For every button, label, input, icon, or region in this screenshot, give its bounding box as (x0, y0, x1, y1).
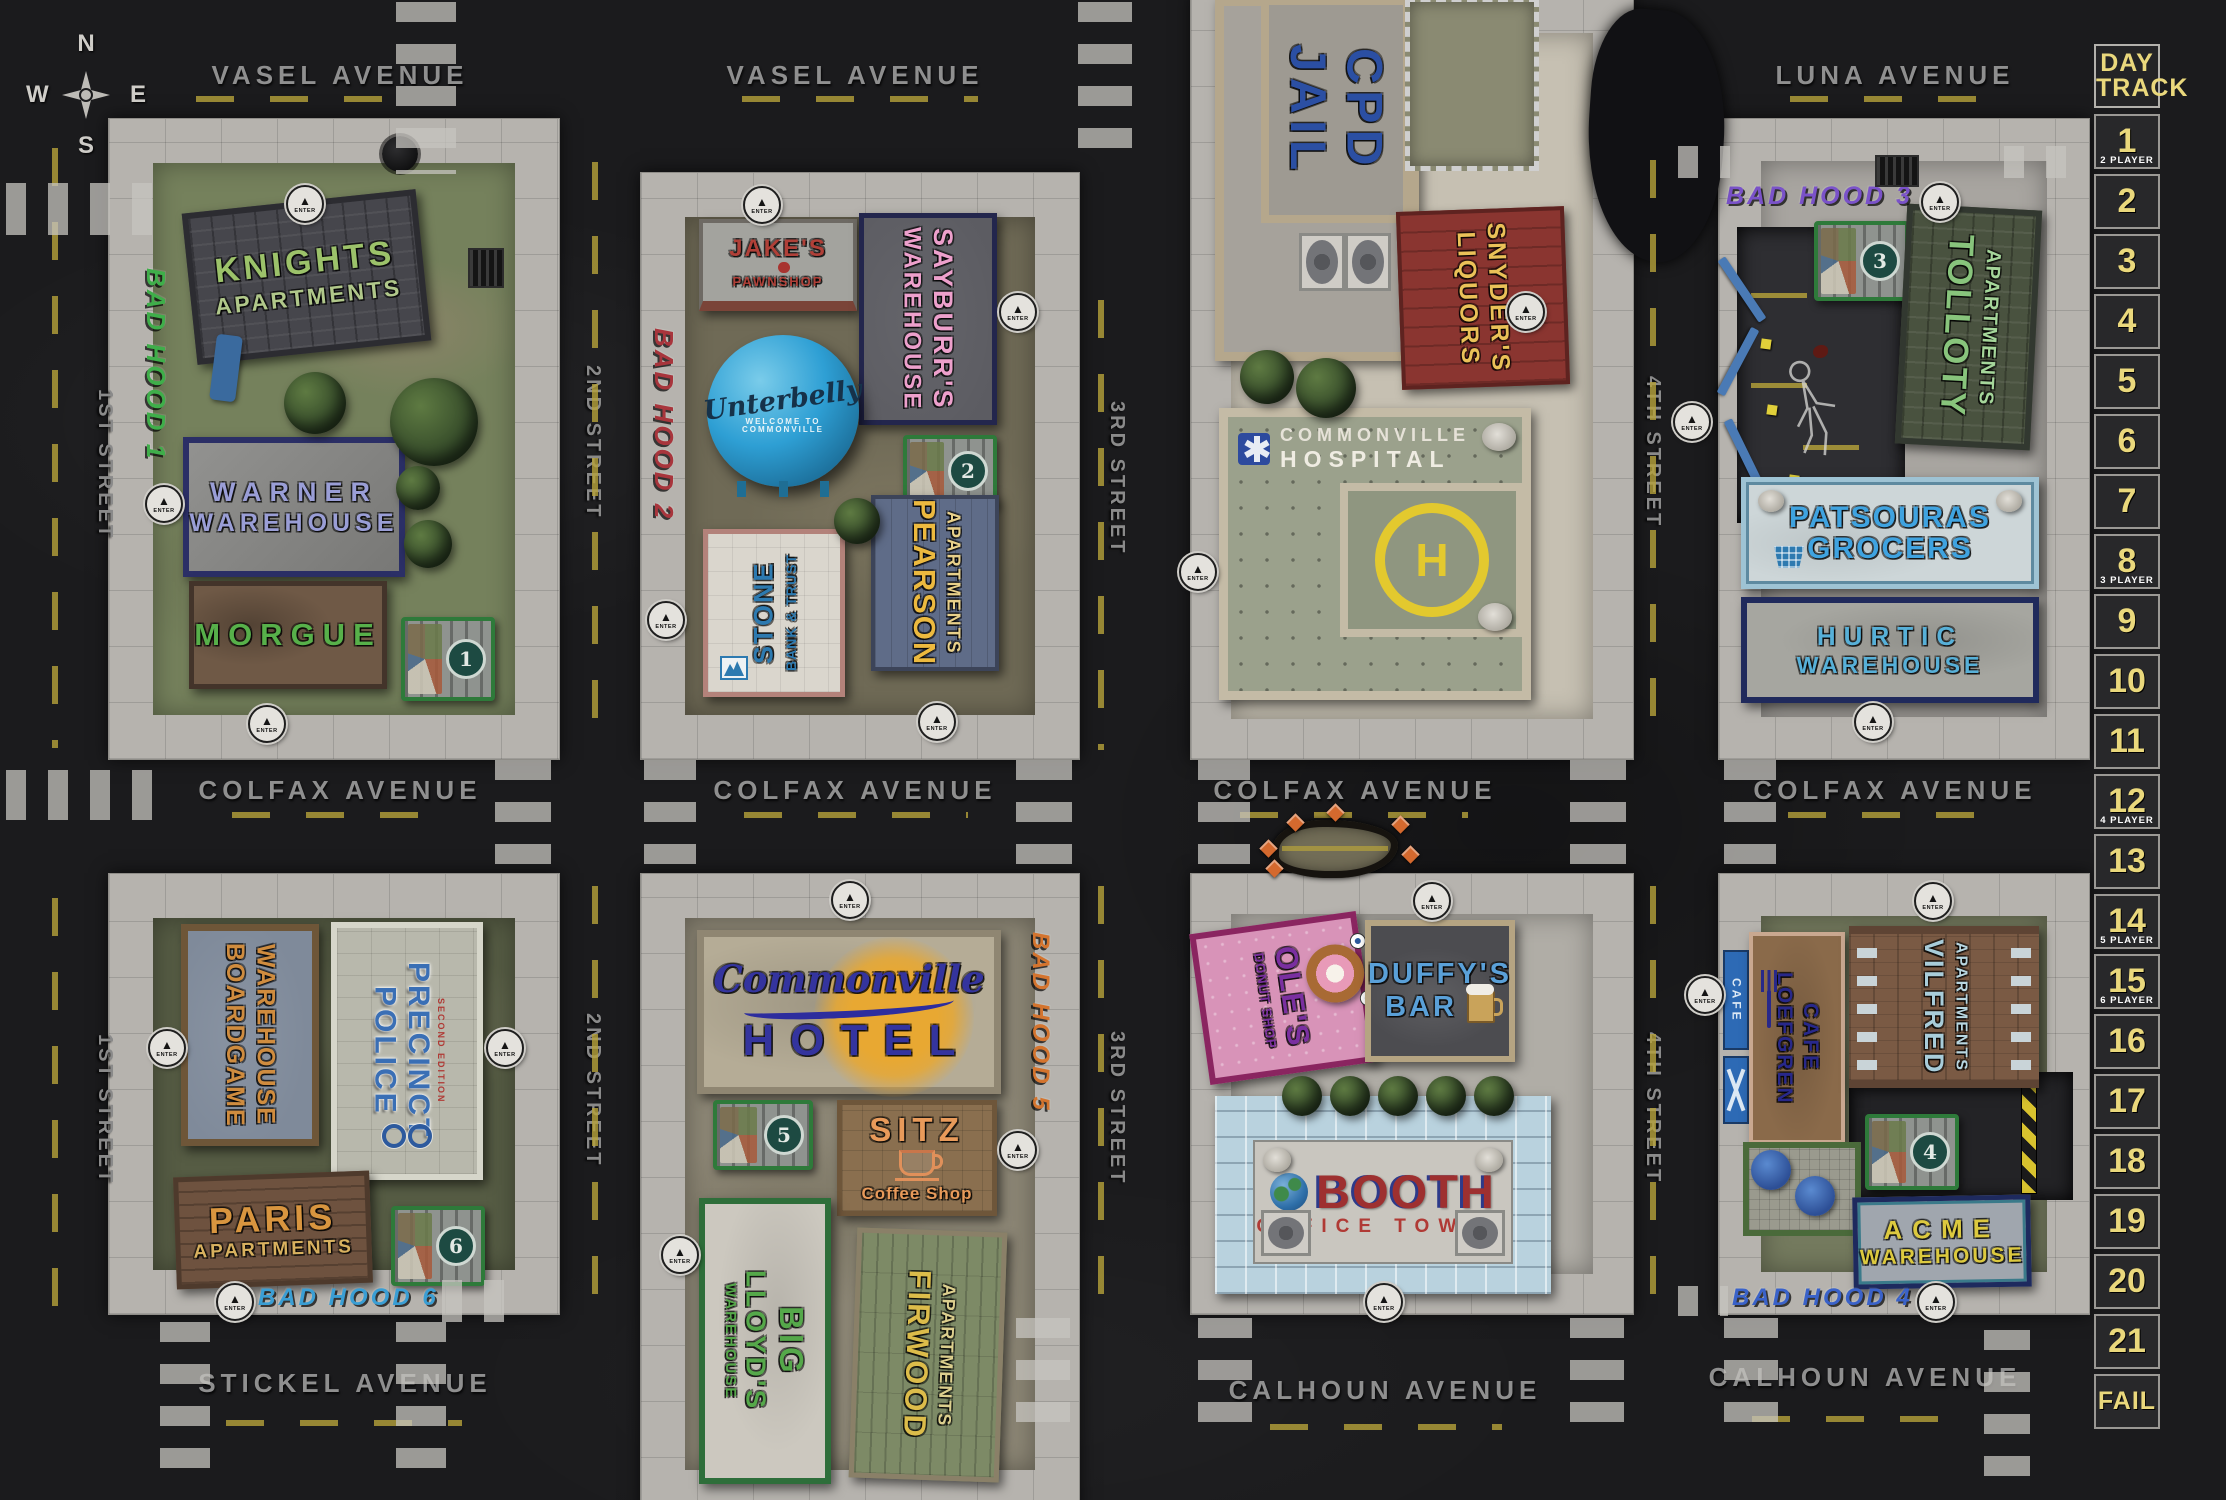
road-center-line (1790, 96, 2002, 102)
enter-label: ENTER (669, 1260, 690, 1266)
enter-label: ENTER (224, 1307, 245, 1313)
enter-arrow-icon (1934, 191, 1946, 207)
enter-marker: ENTER (1914, 882, 1952, 920)
commonville-game-board: N S W E KNIGHTS APARTMENTS WARNER WAREHO… (0, 0, 2226, 1500)
fork-icon (1761, 970, 1777, 1028)
enter-marker: ENTER (831, 881, 869, 919)
crosswalk (1984, 1330, 2030, 1485)
city-block-8: CAFE LOEFGREN CAFE VILFRED APARTMENTS 4 (1718, 873, 2090, 1315)
day-track-cell-14: 145 PLAYER (2094, 894, 2160, 949)
street-label-4th-street-upper: 4TH STREET (1634, 362, 1664, 542)
enter-label: ENTER (156, 1053, 177, 1059)
day-track-cell-10: 10 (2094, 654, 2160, 709)
enter-marker: ENTER (486, 1029, 524, 1067)
road-center-line (52, 898, 58, 1306)
tree (390, 378, 478, 466)
building-commonville-hotel: Commonville HOTEL (697, 930, 1001, 1094)
building-boardgame-warehouse: BOARDGAME WAREHOUSE (181, 924, 319, 1146)
enter-arrow-icon (1426, 890, 1438, 906)
enter-arrow-icon (1930, 1291, 1942, 1307)
road-center-line (592, 162, 598, 748)
building-booth-office-tower: BOOTH OFFICE TOWER (1215, 1096, 1551, 1294)
day-track-cell-11: 11 (2094, 714, 2160, 769)
enter-arrow-icon (158, 493, 170, 509)
enter-label: ENTER (294, 209, 315, 215)
enter-marker: ENTER (999, 1131, 1037, 1169)
crosswalk (6, 183, 174, 235)
enter-marker: ENTER (145, 485, 183, 523)
building-paris-apartments: PARIS APARTMENTS (173, 1171, 373, 1290)
jail-fenced-yard (1405, 0, 1539, 171)
enter-arrow-icon (499, 1037, 511, 1053)
cherries-icon (765, 262, 791, 274)
enter-label: ENTER (1421, 906, 1442, 912)
ac-unit (1261, 1210, 1311, 1256)
tree (1474, 1076, 1514, 1116)
enter-marker: ENTER (216, 1283, 254, 1321)
evidence-marker (1760, 338, 1771, 349)
building-tolloty-apartments: TOLLOTY APARTMENTS (1895, 204, 2042, 451)
player-count-note: 6 PLAYER (2096, 995, 2158, 1006)
street-label-colfax-avenue-2: COLFAX AVENUE (690, 775, 1020, 806)
enter-marker: ENTER (1413, 882, 1451, 920)
ac-unit (1345, 233, 1391, 291)
street-label-1st-street-upper: 1ST STREET (86, 375, 116, 555)
city-block-4: 3 TOLLOTY APARTMENTS PATSOURAS GROCERS H… (1718, 118, 2090, 760)
trash (398, 1213, 432, 1279)
enter-label: ENTER (1681, 427, 1702, 433)
tree (284, 372, 346, 434)
day-track-cell-13: 13 (2094, 834, 2160, 889)
crosswalk (6, 770, 174, 820)
handcuffs-icon (382, 1124, 432, 1148)
day-track: DAY TRACK 12 PLAYER23456783 PLAYER910111… (2094, 44, 2160, 1429)
crosswalk (160, 1322, 210, 1484)
enter-marker: ENTER (1854, 703, 1892, 741)
dumpster-6-badge: 6 (436, 1226, 476, 1266)
city-block-2: JAKE'S PAWNSHOP SAYBURR'S WAREHOUSE Unte… (640, 172, 1080, 760)
tree (834, 498, 880, 544)
tree (1426, 1076, 1466, 1116)
road-center-line (1240, 812, 1468, 818)
crosswalk (1016, 760, 1072, 870)
player-count-note: 5 PLAYER (2096, 935, 2158, 946)
building-big-lloyds-warehouse: BIG LLOYD'S WAREHOUSE (699, 1198, 831, 1484)
enter-arrow-icon (299, 193, 311, 209)
day-track-cell-16: 16 (2094, 1014, 2160, 1069)
enter-marker: ENTER (1507, 293, 1545, 331)
day-track-title-line2: TRACK (2096, 76, 2158, 102)
building-loefgren-cafe: LOEFGREN CAFE (1749, 932, 1845, 1144)
enter-label: ENTER (256, 729, 277, 735)
chalk-body-outline-icon (1765, 349, 1860, 468)
grocery-basket-icon (1774, 546, 1804, 568)
building-oles-donut-shop: OLE'S DONUT SHOP (1189, 911, 1377, 1085)
building-pearson-apartments: PEARSON APARTMENTS (871, 495, 999, 671)
enter-label: ENTER (1007, 1155, 1028, 1161)
trash (408, 624, 442, 694)
enter-arrow-icon (261, 713, 273, 729)
enter-arrow-icon (1378, 1291, 1390, 1307)
road-center-line (1270, 1424, 1502, 1430)
crosswalk (1570, 760, 1626, 870)
street-label-vasel-avenue-west: VASEL AVENUE (170, 60, 510, 91)
day-track-cell-6: 6 (2094, 414, 2160, 469)
enter-label: ENTER (1922, 906, 1943, 912)
city-block-1: KNIGHTS APARTMENTS WARNER WAREHOUSE MORG… (108, 118, 560, 760)
roof-bolt (1758, 490, 1784, 512)
traffic-cone (1391, 815, 1409, 833)
road-center-line (1650, 886, 1656, 1306)
enter-arrow-icon (1927, 890, 1939, 906)
crosswalk (396, 2, 456, 174)
day-track-cell-1: 12 PLAYER (2094, 114, 2160, 169)
dumpster-4-badge: 4 (1910, 1132, 1950, 1172)
enter-marker: ENTER (661, 1236, 699, 1274)
roof-bolt (1475, 1148, 1503, 1172)
cafe-utensils-sign (1723, 1056, 1749, 1124)
enter-arrow-icon (756, 194, 768, 210)
trash (1872, 1121, 1906, 1183)
graffiti-bad-hood-6: BAD HOOD 6 (258, 1284, 439, 1312)
graffiti-bad-hood-2: BAD HOOD 2 (648, 328, 679, 538)
crosswalk (396, 1322, 446, 1480)
building-commonville-hospital: COMMONVILLE HOSPITAL H (1219, 408, 1531, 700)
player-count-note: 3 PLAYER (2096, 575, 2158, 586)
trash (720, 1107, 757, 1163)
road-center-line (196, 96, 404, 102)
ac-unit (1299, 233, 1345, 291)
enter-label: ENTER (1929, 207, 1950, 213)
tree (1240, 350, 1294, 404)
crosswalk (1724, 760, 1776, 870)
street-label-1st-street-lower: 1ST STREET (86, 1020, 116, 1200)
building-vilfred-apartments: VILFRED APARTMENTS (1849, 926, 2039, 1088)
road-center-line (232, 812, 454, 818)
day-track-cell-12: 124 PLAYER (2094, 774, 2160, 829)
street-label-calhoun-avenue-1: CALHOUN AVENUE (1215, 1375, 1555, 1406)
enter-arrow-icon (1686, 411, 1698, 427)
day-track-cell-5: 5 (2094, 354, 2160, 409)
building-snyders-liquors: SNYDER'S LIQUORS (1396, 206, 1570, 390)
day-track-title-line1: DAY (2096, 51, 2158, 77)
traffic-cone (1326, 803, 1344, 821)
day-track-cell-17: 17 (2094, 1074, 2160, 1129)
street-label-luna-avenue: LUNA AVENUE (1740, 60, 2050, 91)
building-firwood-apartments: FIRWOOD APARTMENTS (849, 1227, 1008, 1482)
trash (1821, 228, 1856, 294)
player-count-note: 4 PLAYER (2096, 815, 2158, 826)
patio-umbrella (1751, 1150, 1791, 1190)
building-sayburrs-warehouse: SAYBURR'S WAREHOUSE (859, 213, 997, 425)
graffiti-bad-hood-5: BAD HOOD 5 (1026, 932, 1054, 1132)
storm-drain-grate (468, 248, 504, 288)
building-police-precinct: POLICE PRECINCT SECOND EDITION (331, 922, 483, 1180)
street-label-colfax-avenue-1: COLFAX AVENUE (170, 775, 510, 806)
road-center-line (592, 886, 598, 1306)
stone-bank-mountain-logo (720, 656, 748, 680)
enter-label: ENTER (839, 905, 860, 911)
street-label-4th-street-lower: 4TH STREET (1634, 1018, 1664, 1198)
day-track-cell-20: 20 (2094, 1254, 2160, 1309)
enter-label: ENTER (1187, 577, 1208, 583)
city-block-5: BOARDGAME WAREHOUSE POLICE PRECINCT SECO… (108, 873, 560, 1315)
enter-marker: ENTER (1917, 1283, 1955, 1321)
day-track-cell-2: 2 (2094, 174, 2160, 229)
ac-unit (1455, 1210, 1505, 1256)
road-center-line (52, 148, 58, 748)
window-slats (2011, 944, 2031, 1070)
patio-umbrella (1795, 1176, 1835, 1216)
city-block-6: Commonville HOTEL 5 SITZ Coffee Shop BIG… (640, 873, 1080, 1500)
crosswalk (495, 760, 551, 870)
tree (1378, 1076, 1418, 1116)
enter-arrow-icon (1192, 561, 1204, 577)
crosswalk (1198, 1318, 1252, 1438)
trash (910, 442, 944, 500)
enter-arrow-icon (674, 1244, 686, 1260)
enter-label: ENTER (655, 625, 676, 631)
enter-label: ENTER (1694, 1000, 1715, 1006)
day-track-cell-4: 4 (2094, 294, 2160, 349)
enter-marker: ENTER (999, 293, 1037, 331)
enter-arrow-icon (931, 711, 943, 727)
enter-arrow-icon (229, 1291, 241, 1307)
booth-roof-panel: BOOTH OFFICE TOWER (1253, 1140, 1513, 1264)
enter-arrow-icon (161, 1037, 173, 1053)
roof-vent (1482, 423, 1516, 451)
day-track-cell-3: 3 (2094, 234, 2160, 289)
crosswalk (1570, 1318, 1624, 1438)
street-label-colfax-avenue-4: COLFAX AVENUE (1730, 775, 2060, 806)
dumpster-4: 4 (1865, 1114, 1959, 1190)
day-track-cell-18: 18 (2094, 1134, 2160, 1189)
enter-marker: ENTER (1673, 403, 1711, 441)
crosswalk (1678, 146, 1730, 178)
street-label-2nd-street-upper: 2ND STREET (574, 352, 604, 532)
road-center-line (1098, 886, 1104, 1306)
enter-label: ENTER (1862, 727, 1883, 733)
enter-arrow-icon (1867, 711, 1879, 727)
enter-arrow-icon (1012, 1139, 1024, 1155)
enter-label: ENTER (926, 727, 947, 733)
road-center-line (1650, 160, 1656, 748)
enter-marker: ENTER (248, 705, 286, 743)
enter-marker: ENTER (286, 185, 324, 223)
window-slats (1857, 944, 1877, 1070)
enter-label: ENTER (1515, 317, 1536, 323)
dumpster-3: 3 (1814, 221, 1909, 301)
day-track-cell-19: 19 (2094, 1194, 2160, 1249)
tree (1282, 1076, 1322, 1116)
street-label-2nd-street-lower: 2ND STREET (574, 1000, 604, 1180)
building-stone-bank-and-trust: STONE BANK & TRUST (703, 529, 845, 697)
compass-north: N (77, 30, 94, 58)
day-track-cell-9: 9 (2094, 594, 2160, 649)
building-jakes-pawnshop: JAKE'S PAWNSHOP (699, 219, 857, 311)
street-label-vasel-avenue-east: VASEL AVENUE (690, 60, 1020, 91)
unterbelly-water-tower: Unterbelly WELCOME TO COMMONVILLE (707, 335, 859, 487)
building-morgue: MORGUE (189, 581, 387, 689)
road-center-line (744, 812, 968, 818)
crossed-utensils-icon (1725, 1058, 1747, 1122)
striped-pole (2021, 1074, 2037, 1194)
enter-arrow-icon (1699, 984, 1711, 1000)
day-track-cell-8: 83 PLAYER (2094, 534, 2160, 589)
enter-arrow-icon (1012, 301, 1024, 317)
road-center-line (742, 96, 978, 102)
crosswalk (1678, 1286, 1728, 1316)
cafe-patio (1743, 1142, 1861, 1236)
enter-marker: ENTER (647, 601, 685, 639)
building-acme-warehouse: ACME WAREHOUSE (1852, 1194, 2032, 1289)
building-sitz-coffee-shop: SITZ Coffee Shop (837, 1100, 997, 1216)
enter-arrow-icon (844, 889, 856, 905)
building-hurtic-warehouse: HURTIC WAREHOUSE (1741, 597, 2039, 703)
enter-arrow-icon (1520, 301, 1532, 317)
day-track-cell-7: 7 (2094, 474, 2160, 529)
enter-label: ENTER (1925, 1307, 1946, 1313)
pothole (1272, 820, 1398, 878)
roof-vent (1478, 603, 1512, 631)
building-cpd-jail: CPD JAIL (1261, 0, 1411, 223)
enter-label: ENTER (1007, 317, 1028, 323)
crosswalk (644, 760, 696, 870)
crosswalk (442, 1280, 516, 1322)
enter-label: ENTER (751, 210, 772, 216)
crosswalk (1198, 760, 1250, 870)
enter-marker: ENTER (1179, 553, 1217, 591)
road-center-line (1752, 1416, 1966, 1422)
enter-label: ENTER (494, 1053, 515, 1059)
day-track-header: DAY TRACK (2094, 44, 2160, 108)
coffee-cup-icon (899, 1150, 935, 1176)
storm-drain-grate (1875, 155, 1919, 187)
building-duffys-bar: DUFFY'S BAR (1365, 920, 1515, 1062)
crosswalk (1016, 1318, 1070, 1438)
enter-marker: ENTER (918, 703, 956, 741)
beer-mug-icon (1467, 991, 1495, 1023)
compass-west: W (26, 81, 49, 109)
compass-east: E (130, 81, 146, 109)
dumpster-2-badge: 2 (948, 451, 988, 491)
roof-bolt (1996, 490, 2022, 512)
day-track-cell-fail: FAIL (2094, 1374, 2160, 1429)
traffic-cone (1401, 845, 1419, 863)
crosswalk (1078, 2, 1132, 170)
player-count-note: 2 PLAYER (2096, 155, 2158, 166)
crosswalk (1724, 1318, 1778, 1438)
enter-marker: ENTER (743, 186, 781, 224)
evidence-marker (1766, 404, 1777, 415)
compass-south: S (78, 132, 94, 160)
crosswalk (2004, 146, 2086, 178)
day-track-cell-21: 21 (2094, 1314, 2160, 1369)
enter-marker: ENTER (1921, 183, 1959, 221)
dumpster-5-badge: 5 (764, 1115, 804, 1155)
dumpster-6: 6 (391, 1206, 485, 1286)
tree (396, 466, 440, 510)
tree (1330, 1076, 1370, 1116)
booth-globe-icon (1270, 1173, 1308, 1211)
enter-label: ENTER (1373, 1307, 1394, 1313)
star-of-life-icon (1238, 433, 1270, 465)
day-track-cell-15: 156 PLAYER (2094, 954, 2160, 1009)
building-warner-warehouse: WARNER WAREHOUSE (183, 437, 405, 577)
compass-star-icon (60, 69, 112, 121)
enter-marker: ENTER (1686, 976, 1724, 1014)
graffiti-bad-hood-1: BAD HOOD 1 (140, 268, 171, 478)
enter-marker: ENTER (1365, 1283, 1403, 1321)
enter-label: ENTER (153, 509, 174, 515)
graffiti-bad-hood-4: BAD HOOD 4 (1732, 1284, 1913, 1312)
road-center-line (1098, 300, 1104, 750)
cafe-sign: CAFE (1723, 950, 1749, 1050)
building-patsouras-grocers: PATSOURAS GROCERS (1741, 477, 2039, 589)
street-label-stickel-avenue: STICKEL AVENUE (175, 1368, 515, 1399)
dumpster-1: 1 (401, 617, 495, 701)
water-tower-legs (737, 481, 828, 497)
road-center-line (1788, 812, 2006, 818)
enter-marker: ENTER (148, 1029, 186, 1067)
dumpster-1-badge: 1 (446, 639, 486, 679)
tree (404, 520, 452, 568)
dumpster-5: 5 (713, 1100, 813, 1170)
day-track-cells: 12 PLAYER23456783 PLAYER91011124 PLAYER1… (2094, 114, 2160, 1429)
hospital-title: COMMONVILLE HOSPITAL (1238, 425, 1470, 473)
enter-arrow-icon (660, 609, 672, 625)
tree (1296, 358, 1356, 418)
dumpster-3-badge: 3 (1860, 241, 1900, 281)
roof-bolt (1263, 1148, 1291, 1172)
